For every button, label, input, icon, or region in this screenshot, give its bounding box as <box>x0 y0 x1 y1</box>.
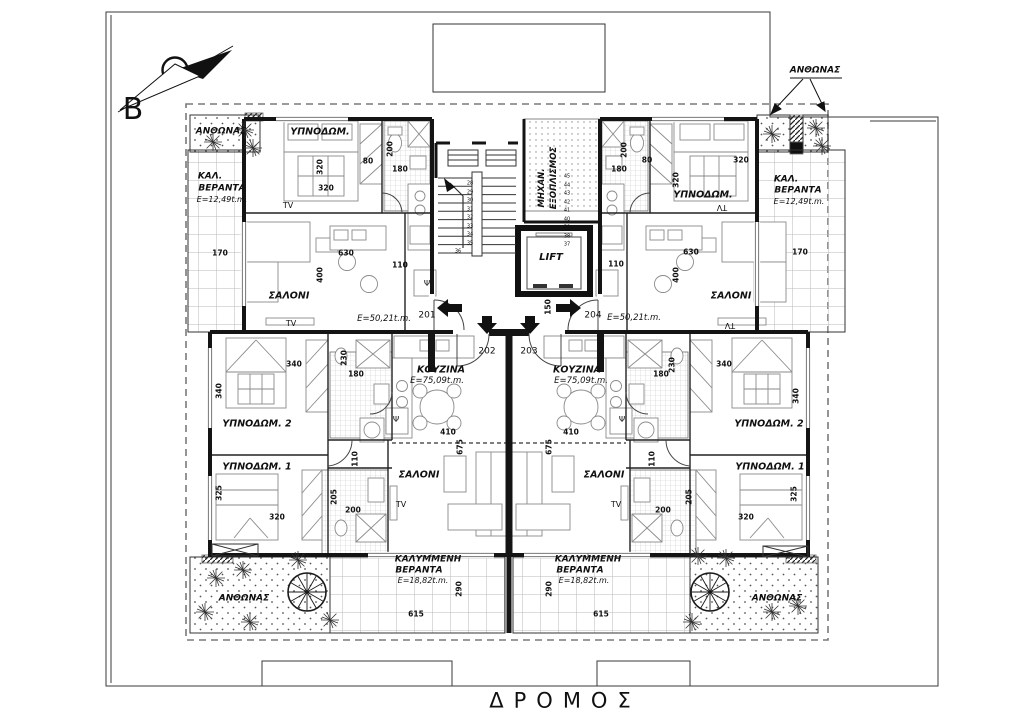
entrance-canopy <box>433 24 605 92</box>
entrance-arrows <box>437 299 581 334</box>
wall-pier <box>489 329 529 336</box>
lift-shaft <box>518 228 590 294</box>
spiral-stair <box>691 573 729 611</box>
spiral-stair <box>288 573 326 611</box>
wall-pier <box>597 334 604 372</box>
north-compass <box>118 46 233 112</box>
floor-plan-page: BΔΡΟΜΟΣΑΝΘΩΝΑΣΑΝΘΩΝΑΣΑΝΘΩΝΑΣΑΝΘΩΝΑΣΥΠΝΟΔ… <box>0 0 1023 723</box>
staircase <box>438 150 516 256</box>
wall-pier <box>428 334 435 372</box>
floor-plan-drawing <box>0 0 1023 723</box>
planter-leader <box>771 78 842 114</box>
